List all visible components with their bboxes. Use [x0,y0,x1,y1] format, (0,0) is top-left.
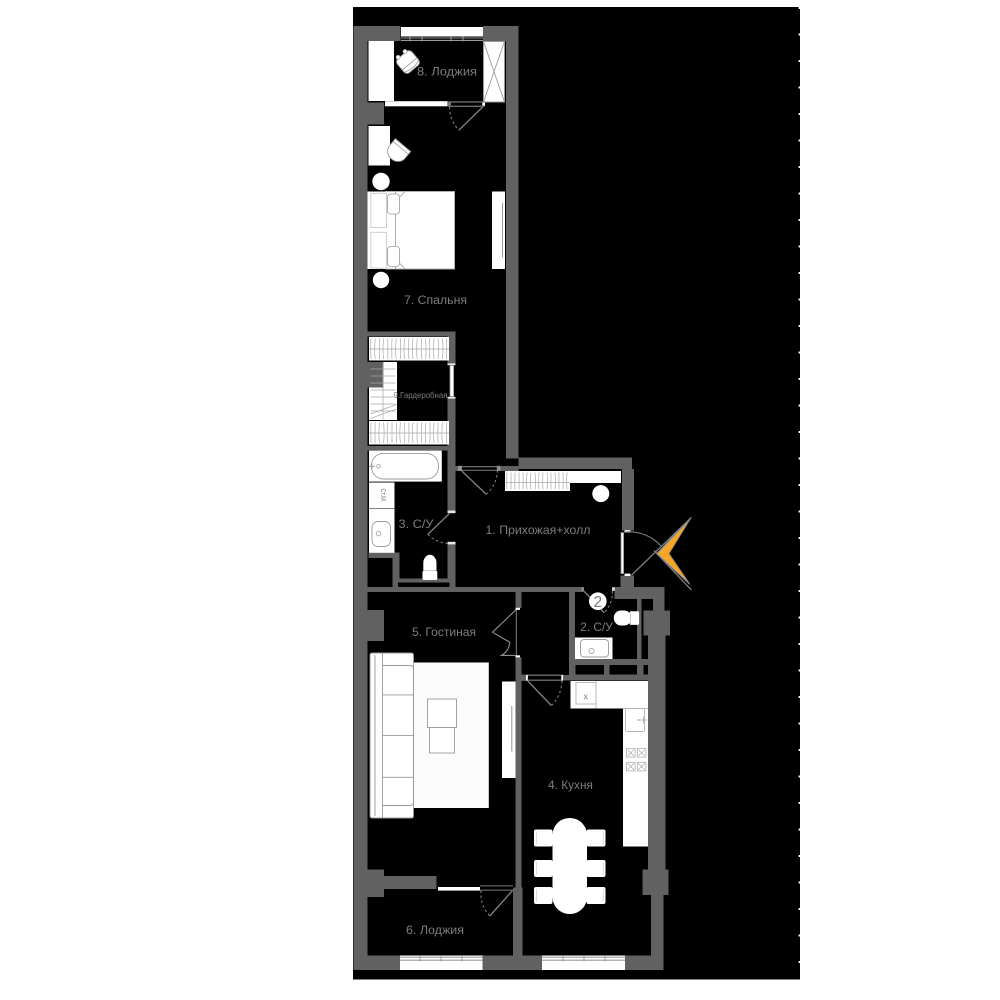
svg-text:4. Кухня: 4. Кухня [548,780,593,792]
svg-text:x: x [584,692,589,702]
svg-text:1. Прихожая+холл: 1. Прихожая+холл [486,523,591,537]
svg-text:2. С/У: 2. С/У [580,620,613,634]
svg-text:9.Гардеробная: 9.Гардеробная [394,390,448,400]
svg-text:2: 2 [593,594,602,611]
svg-text:6. Лоджия: 6. Лоджия [406,923,464,937]
svg-text:3. С/У: 3. С/У [399,517,434,531]
svg-text:7. Спальня: 7. Спальня [404,293,467,307]
svg-text:8. Лоджия: 8. Лоджия [417,65,477,79]
svg-text:5. Гостиная: 5. Гостиная [412,625,476,639]
svg-text:Ст.М.: Ст.М. [379,489,386,503]
